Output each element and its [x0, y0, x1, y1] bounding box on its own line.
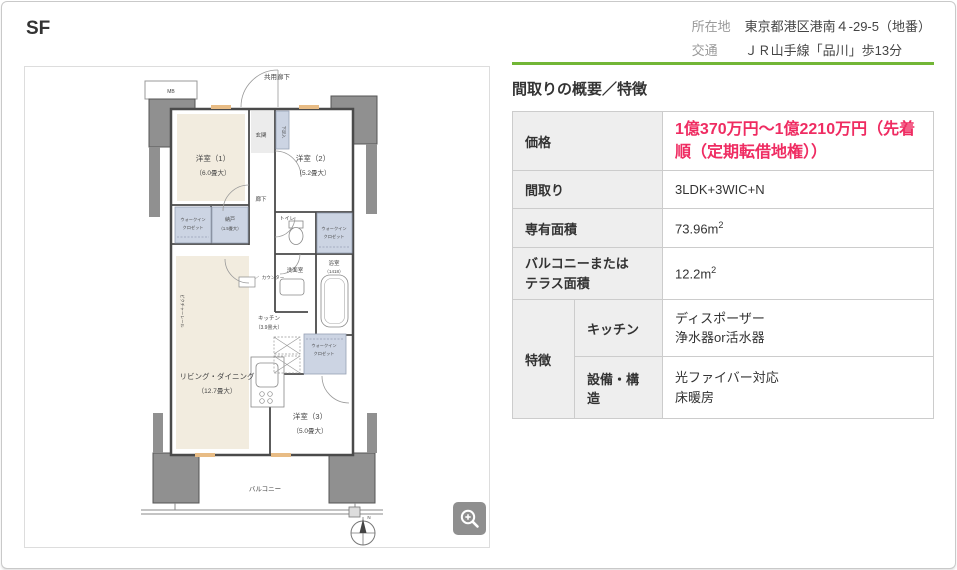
- floorplan-image[interactable]: 共用廊下 MB: [24, 66, 490, 548]
- page-title: SF: [26, 18, 50, 40]
- svg-text:洗面室: 洗面室: [287, 266, 304, 274]
- table-row: 価格 1億370万円～1億2210万円（先着順（定期転借地権））: [513, 112, 934, 171]
- svg-text:キッチン: キッチン: [258, 315, 281, 322]
- svg-text:廊下: 廊下: [255, 195, 267, 203]
- floorplan-drawing: 共用廊下 MB: [25, 67, 489, 547]
- svg-text:カウンター: カウンター: [262, 274, 285, 281]
- svg-text:ウォークイン: ウォークイン: [321, 225, 346, 232]
- features-equipment-label: 設備・構造: [575, 357, 663, 419]
- section-divider: [512, 62, 934, 65]
- magnifier-plus-icon: [459, 508, 480, 529]
- features-equipment-value: 光ファイバー対応 床暖房: [663, 357, 934, 419]
- kitchen-fixture: [251, 357, 284, 407]
- meter-box: MB: [145, 81, 197, 99]
- bathtub-fixture: [321, 275, 348, 327]
- section-heading: 間取りの概要／特徴: [512, 78, 934, 99]
- svg-text:バルコニー: バルコニー: [249, 485, 281, 493]
- zoom-in-button[interactable]: [453, 502, 486, 535]
- table-row: 間取り 3LDK+3WIC+N: [513, 171, 934, 209]
- svg-text:ウォークイン: ウォークイン: [180, 216, 205, 223]
- layout-value: 3LDK+3WIC+N: [663, 171, 934, 209]
- svg-text:ウォークイン: ウォークイン: [311, 342, 336, 349]
- compass-icon: N: [351, 515, 375, 545]
- washbasin-fixture: [280, 279, 304, 295]
- area-value: 73.96m2: [663, 209, 934, 248]
- price-value: 1億370万円～1億2210万円（先着順（定期転借地権））: [663, 112, 934, 171]
- svg-text:（1.5畳大）: （1.5畳大）: [219, 225, 242, 232]
- table-row: 専有面積 73.96m2: [513, 209, 934, 248]
- table-row: 設備・構造 光ファイバー対応 床暖房: [513, 357, 934, 419]
- floorplan-detail-card: SF 所在地 東京都港区港南４-29-5（地番） 交通 ＪＲ山手線「品川」歩13…: [1, 1, 956, 569]
- features-label: 特徴: [513, 300, 575, 419]
- svg-text:（1418）: （1418）: [324, 269, 343, 274]
- svg-text:納戸: 納戸: [225, 216, 235, 223]
- svg-text:MB: MB: [167, 89, 175, 95]
- access-label: 交通: [692, 40, 731, 59]
- svg-text:N: N: [367, 515, 370, 520]
- layout-label: 間取り: [513, 171, 663, 209]
- svg-text:（12.7畳大）: （12.7畳大）: [198, 386, 237, 395]
- svg-text:リビング・ダイニング: リビング・ダイニング: [180, 371, 255, 381]
- balcony-value: 12.2m2: [663, 248, 934, 300]
- table-row: バルコニーまたは テラス面積 12.2m2: [513, 248, 934, 300]
- svg-text:トイレ: トイレ: [279, 216, 294, 222]
- svg-text:クロゼット: クロゼット: [314, 350, 335, 357]
- svg-text:玄関: 玄関: [255, 131, 267, 139]
- svg-text:クロゼット: クロゼット: [324, 233, 345, 240]
- living-floor: [176, 256, 249, 449]
- svg-text:（5.2畳大）: （5.2畳大）: [295, 168, 330, 177]
- svg-text:洋室（2）: 洋室（2）: [296, 153, 330, 163]
- table-row: 特徴 キッチン ディスポーザー 浄水器or活水器: [513, 300, 934, 357]
- corridor-label: 共用廊下: [264, 72, 291, 81]
- svg-text:洋室（1）: 洋室（1）: [196, 153, 230, 163]
- balcony-label: バルコニーまたは テラス面積: [513, 248, 663, 300]
- svg-text:（5.0畳大）: （5.0畳大）: [292, 426, 327, 435]
- svg-text:クロゼット: クロゼット: [183, 224, 204, 231]
- overview-section: 間取りの概要／特徴 価格 1億370万円～1億2210万円（先着順（定期転借地権…: [512, 62, 934, 419]
- svg-text:（3.9畳大）: （3.9畳大）: [256, 324, 283, 331]
- svg-text:洋室（3）: 洋室（3）: [293, 411, 327, 421]
- features-kitchen-value: ディスポーザー 浄水器or活水器: [663, 300, 934, 357]
- spec-table: 価格 1億370万円～1億2210万円（先着順（定期転借地権）） 間取り 3LD…: [512, 111, 934, 419]
- features-kitchen-label: キッチン: [575, 300, 663, 357]
- price-label: 価格: [513, 112, 663, 171]
- entrance-floor: [251, 111, 274, 153]
- area-label: 専有面積: [513, 209, 663, 248]
- property-header: 所在地 東京都港区港南４-29-5（地番） 交通 ＪＲ山手線「品川」歩13分: [692, 16, 931, 59]
- location-label: 所在地: [692, 16, 731, 35]
- svg-text:（6.0畳大）: （6.0畳大）: [195, 168, 230, 177]
- toilet-fixture: [289, 221, 303, 245]
- svg-text:浴室: 浴室: [328, 259, 340, 267]
- location-value: 東京都港区港南４-29-5（地番）: [745, 16, 931, 35]
- access-value: ＪＲ山手線「品川」歩13分: [745, 40, 931, 59]
